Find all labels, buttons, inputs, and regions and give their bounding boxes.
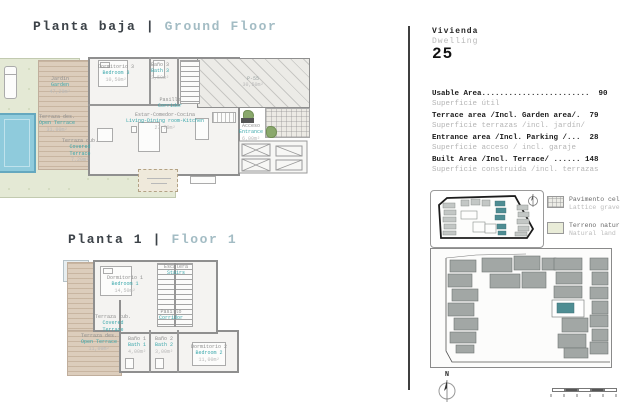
built-area-line-es: Superficie construida /incl. terrazas [432,166,599,174]
dwelling-number: 25 [432,45,453,63]
title-divider-2: | [153,232,162,247]
wall-bath2-right [177,330,179,373]
covered-terrace-floor1-en: Covered Terrace [93,320,133,333]
kitchen-counter [212,112,236,123]
entrance-en: Entrance [237,129,265,135]
bedroom2-area: 11,00m² [185,357,233,363]
room-label-bedroom2: Dormitorio 2 Bedroom 2 11,00m² [185,344,233,363]
floor1-title-es: Planta 1 [68,232,143,247]
open-terrace-floor1-en: Open Terrace [79,339,119,345]
plan-sheet: Planta baja | Ground Floor [0,0,620,406]
bath1-fixture [125,358,134,369]
scale-seg-3 [578,388,591,392]
terrace-area-line: Terrace area /Incl. Garden area/. 79 [432,112,599,120]
room-label-covered-terrace-ground: Terraza cub. Covered Terrace 7,20m² [60,138,100,163]
terrace-area-line-es: Superficie terrazas /incl. jardín/ [432,122,585,130]
usable-area-line-es: Superficie útil [432,100,500,108]
room-label-corridor-floor1: Pasillo Corridor [157,309,185,322]
site-plan-drawing [430,248,612,368]
entrance-area: 6,00m² [237,136,265,142]
bedroom1-area: 14,50m² [101,288,149,294]
planter-2 [266,126,277,138]
pillow-bedroom1 [103,268,113,274]
room-label-bath3: Baño 3 Bath 3 3,50m² [146,62,174,81]
bath1-area: 4,00m² [123,349,151,355]
corridor-ground-en: Corridor [156,103,184,109]
room-label-entrance: Acceso Entrance 6,00m² [237,123,265,142]
garden-area-value: 47,29m² [40,89,80,95]
room-label-p55: P-55 30,50m² [233,76,273,89]
room-label-bath2: Baño 2 Bath 2 3,00m² [151,336,177,355]
scale-bar-ticks [550,394,620,397]
swimming-pool [0,113,36,173]
bath3-area: 3,50m² [146,75,174,81]
room-label-open-terrace-ground: Terraza des. Open Terrace 31,00m² [37,114,77,133]
bedroom3-area: 10,50m² [92,77,140,83]
room-label-corridor-ground: Pasillo Corridor [156,97,184,110]
parking-spaces [238,140,308,174]
scale-bar [552,388,617,392]
north-label: N [436,371,458,379]
bath2-area: 3,00m² [151,349,177,355]
signage-line-1 [147,178,171,179]
pool-inner-line [4,119,30,167]
room-label-covered-terrace-floor1: Terraza cub. Covered Terrace [93,314,133,333]
room-label-bedroom3: Dormitorio 3 Bedroom 3 10,50m² [92,64,140,83]
natural-land-swatch [547,222,564,234]
entrance-area-line-es: Superficie acceso / incl. garaje [432,144,576,152]
scale-seg-5 [604,388,617,392]
p55-area: 30,50m² [233,82,273,88]
ground-floor-title-es: Planta baja [33,19,136,34]
private-signage-box [138,169,178,192]
covered-terrace-ground-area: 7,20m² [60,157,100,163]
bath2-fixture [155,358,164,369]
scale-seg-4 [591,388,604,392]
built-area-line: Built Area /Incl. Terrace/ ...... 148 [432,156,599,164]
lattice-swatch [547,196,564,208]
dwelling-label-es: Vivienda [432,27,478,36]
car-windshield-line [5,74,16,75]
legend-lattice-en: Lattice gravel pav [569,204,620,211]
scale-seg-2 [565,388,578,392]
entrance-area-line: Entrance area /Incl. Parking /... 28 [432,134,599,142]
legend-lattice-es: Pavimento celosía | [569,196,620,203]
room-label-bedroom1: Dormitorio 1 Bedroom 1 14,50m² [101,275,149,294]
site-key-map [430,190,544,248]
living-area: 27,70m² [125,125,205,131]
north-compass-icon [436,379,458,403]
master-site-plan [430,248,612,368]
room-label-bath1: Baño 1 Bath 1 4,00m² [123,336,151,355]
room-label-living: Estar-Comedor-Cocina Living-Dining room-… [125,112,205,131]
covered-terrace-ground-en: Covered Terrace [60,144,100,157]
open-terrace-floor1-area: 11,00m² [79,346,119,352]
north-arrow: N [436,371,458,406]
living-en: Living-Dining room-Kitchen [125,118,205,124]
floor1-title-en: Floor 1 [171,232,237,247]
floor1-title: Planta 1 | Floor 1 [68,232,237,247]
stairs-en: Stairs [160,270,192,276]
room-label-garden: Jardín Garden 47,29m² [40,76,80,95]
legend-natural-es: Terreno natural | [569,222,620,229]
entry-step [190,176,216,184]
panel-divider-line [408,26,410,390]
usable-area-line: Usable Area........................ 90 [432,90,608,98]
car-garden [4,66,17,99]
title-divider: | [146,19,155,34]
key-map-drawing [431,191,543,247]
scale-seg-1 [552,388,565,392]
open-terrace-ground-area: 31,00m² [37,127,77,133]
open-terrace-ground-en: Open Terrace [37,120,77,126]
room-label-open-terrace-floor1: Terraza des. Open Terrace 11,00m² [79,333,119,352]
legend-natural-en: Natural land [569,230,616,237]
ground-floor-title: Planta baja | Ground Floor [33,19,277,34]
ground-floor-title-en: Ground Floor [165,19,278,34]
signage-line-2 [151,183,167,184]
corridor-floor1-en: Corridor [157,315,185,321]
room-label-stairs: Escalera Stairs [160,264,192,277]
